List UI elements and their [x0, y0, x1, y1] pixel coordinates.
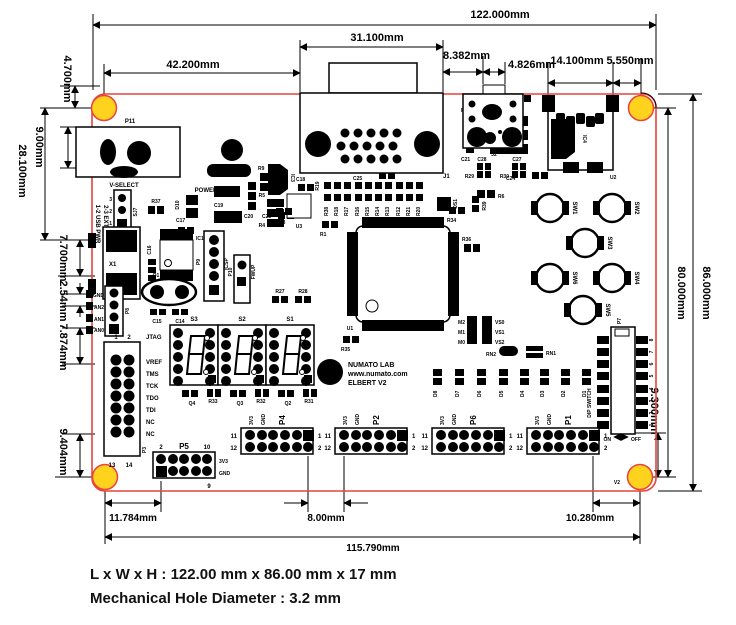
dip-switch: P7 8 7 6 5 4 3 2 1 DIP SWITCH ON OFF [587, 318, 655, 443]
logo: S NUMATO LAB www.numato.com ELBERT V2 [317, 359, 408, 387]
ref-p7: P7 [617, 318, 623, 324]
ref-q2: Q2 [285, 401, 292, 407]
label-gnd: GND [93, 293, 105, 299]
dim-hole-offset-top: 4.700mm [61, 55, 73, 102]
ref-r31: R31 [304, 399, 313, 405]
ref-jtag: JTAG [146, 335, 162, 341]
p2-gnd: GND [355, 414, 361, 426]
dim-hole-span-h: 115.790mm [346, 543, 399, 554]
led-d8: D8 [433, 390, 439, 397]
ref-p9: P9 [196, 259, 202, 265]
p4-3v3: 3V3 [249, 416, 255, 425]
ref-p6: P6 [469, 415, 478, 425]
p6-pin12: 12 [421, 446, 428, 452]
p4-pin12: 12 [230, 446, 237, 452]
p1-pin12: 12 [516, 446, 523, 452]
ref-m2: M2 [458, 320, 465, 326]
ref-c25: C25 [353, 176, 362, 182]
p4-pin1: 1 [318, 434, 322, 440]
audio-jack: J2 C28 R29 C27 R30 [463, 85, 526, 180]
ref-r19: R19 [315, 181, 321, 190]
ref-ic3: IC3 [289, 174, 295, 182]
p5-pin10: 10 [204, 445, 211, 451]
seven-segment-displays: S3 S2 S1 Q4 R33 Q3 R32 Q2 R31 [170, 317, 317, 407]
ref-fwup: FWUP [251, 264, 257, 279]
fpga: U1 [347, 217, 459, 332]
dip-1: 1 [649, 423, 655, 426]
vga-connector: J1 [300, 63, 450, 180]
ref-vs0: VS0 [495, 320, 505, 326]
led-d4: D4 [520, 390, 526, 397]
ref-sw4: SW4 [633, 271, 639, 285]
resrow-4: R15 [365, 207, 371, 216]
dip-8: 8 [649, 338, 655, 341]
hole-diameter-note: Mechanical Hole Diameter : 3.2 mm [90, 590, 710, 607]
ref-r1: R1 [320, 232, 327, 238]
ref-r36: R36 [462, 237, 471, 243]
ref-sw5: SW5 [604, 303, 610, 317]
ref-r6: R6 [498, 194, 505, 200]
dip-6: 6 [649, 362, 655, 365]
ref-m1: M1 [458, 330, 465, 336]
mounting-hole-bottom-right [628, 465, 653, 490]
jtag-header: 1 2 JTAG VREF TMS TCK TDO TDI NC NC 13 1… [104, 335, 162, 469]
ref-c15: C15 [152, 319, 161, 325]
ref-r33: R33 [208, 399, 217, 405]
p6-pin2: 2 [509, 446, 513, 452]
resrow-2: R17 [344, 207, 350, 216]
dim-dip-to-hole: 9.300mm [648, 387, 660, 434]
dim-pin-pitch: 2.54mm [57, 281, 69, 322]
ref-r29: R29 [465, 174, 474, 180]
ref-sj7: SJ7 [133, 207, 139, 216]
ref-r3: R3 [279, 220, 286, 226]
p2-pin12: 12 [324, 446, 331, 452]
p6-3v3: 3V3 [440, 416, 446, 425]
ref-r35: R35 [341, 347, 350, 353]
p5-pin2: 2 [159, 445, 163, 451]
jtag-tck: TCK [146, 384, 159, 390]
ref-j2: J2 [491, 152, 497, 158]
dip-4: 4 [649, 387, 655, 390]
ref-ic4: IC4 [581, 135, 587, 143]
dc-jack: P11 [76, 119, 251, 178]
resrow-0: R38 [324, 207, 330, 216]
led-d7: D7 [455, 390, 461, 397]
dim-vga-width: 31.100mm [350, 32, 403, 44]
jtag-tdo: TDO [146, 396, 159, 402]
dip-5: 5 [649, 374, 655, 377]
ref-s3: S3 [190, 317, 198, 323]
resrow-1: R18 [334, 207, 340, 216]
ref-q1: Q1 [153, 273, 160, 279]
resrow-9: R20 [416, 207, 422, 216]
ref-rn2: RN2 [486, 352, 496, 358]
p1-3v3: 3V3 [535, 416, 541, 425]
ref-p5: P5 [179, 442, 189, 451]
p2-pin11: 11 [325, 434, 332, 440]
p5-pin9: 9 [207, 484, 211, 490]
resrow-3: R16 [355, 207, 361, 216]
p5-3v3: 3V3 [219, 459, 228, 465]
ref-p3: P3 [142, 447, 148, 453]
size-note: L x W x H : 122.00 mm x 86.00 mm x 17 mm [90, 566, 710, 583]
dim-vga-to-jack: 8.382mm [443, 50, 490, 62]
ref-m0: M0 [458, 340, 465, 346]
label-off: OFF [631, 437, 641, 443]
p2-pin1: 1 [412, 434, 416, 440]
jtag-vref: VREF [146, 360, 162, 366]
ref-c27: C27 [512, 157, 521, 163]
led-d6: D6 [477, 390, 483, 397]
ref-c19: C19 [214, 203, 223, 209]
dim-p4-to-p2: 8.00mm [307, 513, 344, 524]
ref-r28: R28 [298, 289, 307, 295]
mounting-hole-top-right [629, 96, 654, 121]
ref-p1: P1 [564, 415, 573, 425]
jtag-pin14: 14 [126, 463, 133, 469]
logo-mark: S [324, 363, 336, 382]
jtag-nc2: NC [146, 432, 155, 438]
push-buttons: SW1 SW2 SW3 SW6 SW4 SW5 [531, 194, 639, 324]
ref-pin1: 1 [109, 221, 112, 227]
p2-3v3: 3V3 [343, 416, 349, 425]
led-d5: D5 [499, 390, 505, 397]
ref-c16: C16 [147, 245, 153, 254]
label-dip-switch: DIP SWITCH [587, 388, 593, 418]
ref-u2: U2 [610, 175, 617, 181]
header-p5: 2 P5 10 3V3 GND 9 [153, 442, 231, 490]
p6-pin11: 11 [422, 434, 429, 440]
dim-jtag-to-hole: 9.404mm [57, 428, 69, 475]
ref-p2: P2 [372, 415, 381, 425]
ref-v2: V2 [614, 480, 620, 486]
ref-p11: P11 [125, 119, 136, 125]
ref-c20: C20 [244, 214, 253, 220]
p2-pin2: 2 [412, 446, 416, 452]
ref-sw3: SW3 [606, 236, 612, 250]
led-row: D8 D7 D6 D5 D4 D3 D2 D1 [433, 369, 591, 397]
led-d2: D2 [561, 390, 567, 397]
pcb-dimension-drawing: 122.000mm 31.100mm 42.200mm 8.382mm 4.82… [0, 0, 736, 625]
ref-vselect: V-SELECT [109, 183, 139, 189]
ref-r9: R9 [258, 166, 265, 172]
dim-p1-to-hole: 10.280mm [566, 513, 614, 524]
ref-s1: S1 [286, 317, 294, 323]
ref-rn1: RN1 [546, 351, 556, 357]
ref-c17: C17 [176, 218, 185, 224]
jtag-pin2: 2 [127, 335, 131, 341]
ref-c21: C21 [461, 157, 470, 163]
ref-s2: S2 [238, 317, 246, 323]
p1-pin2: 2 [604, 446, 608, 452]
header-p2: 3V3 GND P2 11 12 1 2 [324, 414, 416, 455]
ref-r37: R37 [151, 199, 160, 205]
ref-pin2: 2 [109, 209, 112, 215]
label-an1: AN1 [94, 317, 104, 323]
ref-r34: R34 [447, 218, 456, 224]
ref-pin3: 3 [109, 197, 112, 203]
ref-r30: R30 [500, 174, 509, 180]
jtag-tdi: TDI [146, 408, 156, 414]
ref-sw2: SW2 [633, 201, 639, 215]
logo-product: ELBERT V2 [348, 380, 387, 387]
dim-sd-to-hole: 5.550mm [606, 55, 653, 67]
p1-pin11: 11 [517, 434, 524, 440]
ref-q4: Q4 [189, 401, 196, 407]
dim-hole-span-v: 80.000mm [675, 266, 687, 319]
jtag-nc1: NC [146, 420, 155, 426]
ref-p4: P4 [278, 415, 287, 425]
resrow-7: R12 [396, 207, 402, 216]
ref-sw6: SW6 [571, 271, 577, 285]
p4-pin2: 2 [318, 446, 322, 452]
logo-site: www.numato.com [347, 371, 408, 378]
p6-pin1: 1 [509, 434, 513, 440]
jtag-pin13: 13 [109, 463, 116, 469]
dim-an-to-jtag: 7.874mm [57, 323, 69, 370]
dim-dc-jack: 9.00mm [33, 127, 45, 168]
dip-7: 7 [649, 350, 655, 353]
ref-q3: Q3 [237, 401, 244, 407]
resrow-5: R14 [375, 207, 381, 216]
ref-c14: C14 [175, 319, 184, 325]
drawing-canvas: 122.000mm 31.100mm 42.200mm 8.382mm 4.82… [0, 0, 736, 625]
header-p1: 3V3 GND P1 11 12 1 2 [516, 414, 608, 455]
p1-gnd: GND [547, 414, 553, 426]
dim-board-height: 86.000mm [700, 266, 712, 319]
ref-d10: D10 [175, 200, 181, 209]
dip-3: 3 [649, 399, 655, 402]
p4-pin11: 11 [231, 434, 238, 440]
dim-usb-span: 7.700mm [57, 234, 69, 281]
ref-r5: R5 [259, 193, 266, 199]
ref-ic1: IC1 [196, 236, 204, 242]
label-an0: AN0 [94, 328, 104, 334]
p6-gnd: GND [452, 414, 458, 426]
mounting-hole-top-left [92, 96, 117, 121]
ref-u3: U3 [296, 224, 303, 230]
label-an2: AN2 [94, 305, 104, 311]
ref-vs2: VS2 [495, 340, 505, 346]
dim-sd-width: 14.100mm [550, 55, 603, 67]
ref-x1: X1 [109, 262, 117, 268]
dim-board-width: 122.000mm [470, 9, 530, 21]
led-d3: D3 [540, 390, 546, 397]
dim-left-to-vga: 42.200mm [166, 59, 219, 71]
resrow-8: R21 [406, 207, 412, 216]
ref-c28: C28 [477, 157, 486, 163]
ref-r4: R4 [259, 223, 266, 229]
ref-p8: P8 [125, 308, 131, 314]
header-p4: 3V3 GND P4 11 12 1 2 [230, 414, 322, 455]
logo-brand: NUMATO LAB [348, 362, 394, 369]
dim-top-to-usb: 28.100mm [16, 144, 28, 197]
header-p6: 3V3 GND P6 11 12 1 2 [421, 414, 513, 455]
ref-r39: R39 [482, 201, 488, 210]
ref-sw1: SW1 [571, 201, 577, 215]
ref-vs1: VS1 [495, 330, 505, 336]
p4-gnd: GND [261, 414, 267, 426]
ref-p10: P10 [228, 267, 234, 276]
dip-2: 2 [649, 411, 655, 414]
ref-u1: U1 [347, 326, 354, 332]
p5-gnd: GND [219, 471, 231, 477]
ref-c18: C18 [296, 177, 305, 183]
dim-hole-to-p5: 11.784mm [109, 513, 157, 524]
jtag-tms: TMS [146, 372, 159, 378]
ref-r27: R27 [275, 289, 284, 295]
ref-j1: J1 [443, 174, 450, 180]
resrow-6: R13 [385, 207, 391, 216]
ref-r32: R32 [256, 399, 265, 405]
